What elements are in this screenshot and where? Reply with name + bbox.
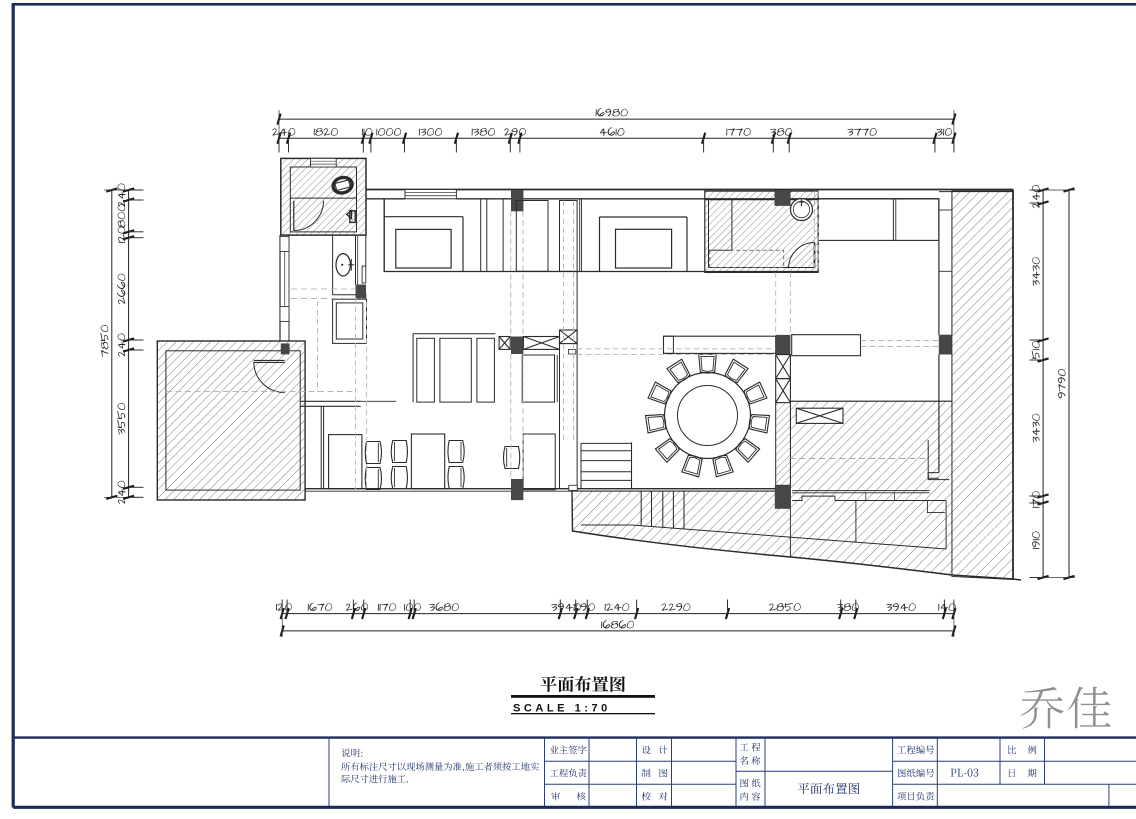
svg-text:SCALE 1:70: SCALE 1:70: [513, 702, 611, 714]
